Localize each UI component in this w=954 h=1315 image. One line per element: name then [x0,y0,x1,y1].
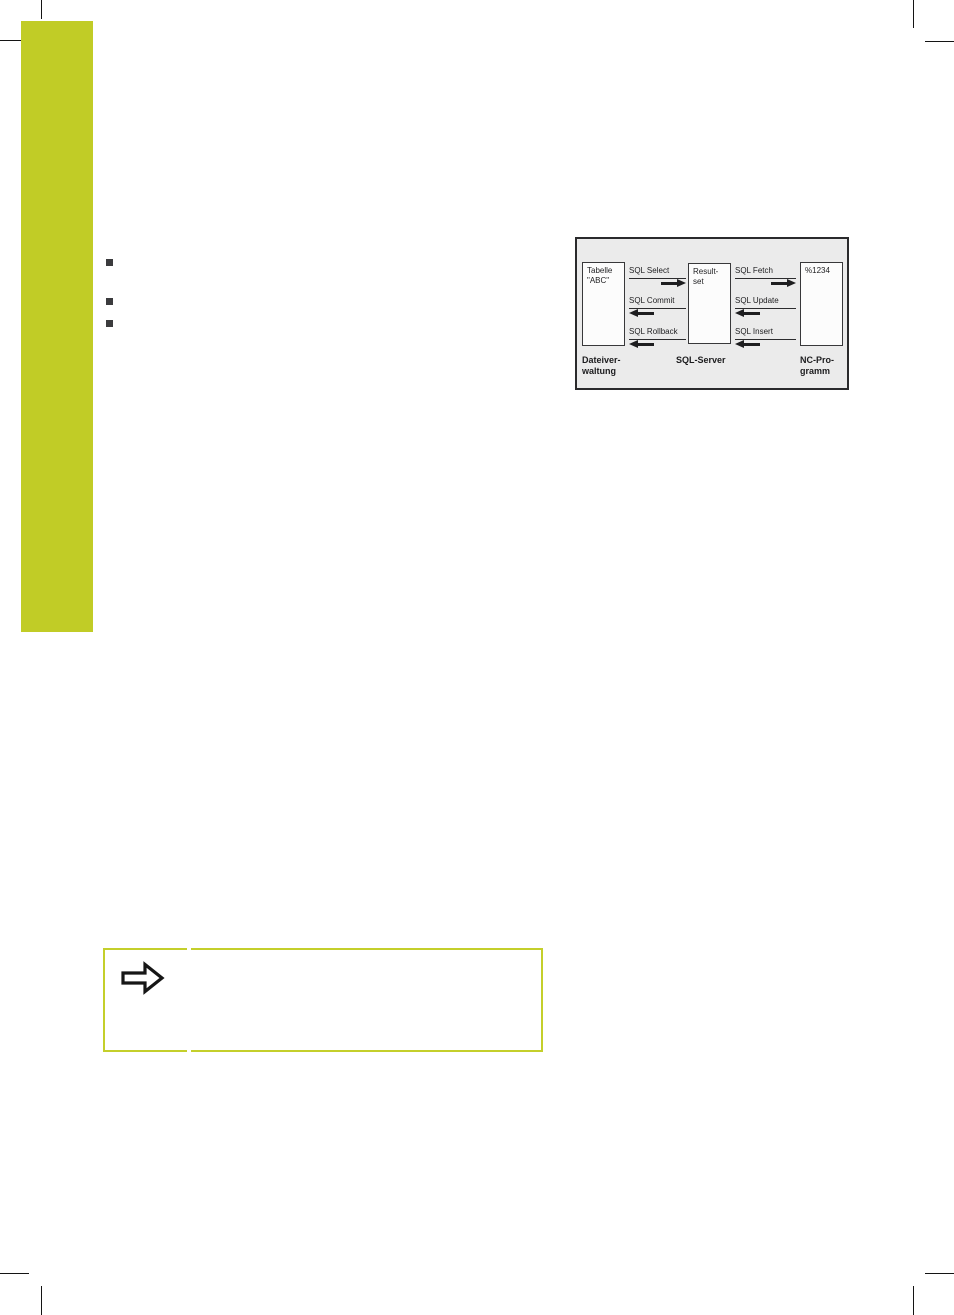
arrow-head-right-icon [771,279,796,287]
note-arrow-icon [120,960,166,996]
arrow-head-left-icon [735,340,760,348]
caption-nc-programm-line1: NC-Pro- [800,355,834,365]
sql-update-arrow: SQL Update [735,296,796,320]
crop-mark-bottom-left-vertical [41,1286,42,1315]
note-icon-cell [103,948,187,1052]
crop-mark-bottom-right-horizontal [925,1273,954,1274]
crop-mark-top-left-horizontal [0,40,21,41]
sql-fetch-label: SQL Fetch [735,266,796,279]
caption-sql-server: SQL-Server [676,355,726,366]
caption-nc-programm: NC-Pro- gramm [800,355,834,377]
sql-fetch-arrow: SQL Fetch [735,266,796,290]
note-text-cell [191,948,543,1052]
result-set-box: Result- set [688,263,731,344]
sql-insert-arrow: SQL Insert [735,327,796,351]
table-abc-label-line2: "ABC" [587,276,609,285]
arrow-head-right-icon [661,279,686,287]
arrow-head-left-icon [629,309,654,317]
table-abc-label-line1: Tabelle [587,266,612,275]
result-set-label-line2: set [693,277,704,286]
crop-mark-top-left-vertical [41,0,42,19]
sql-select-label: SQL Select [629,266,686,279]
caption-sql-server-line1: SQL-Server [676,355,726,365]
nc-program-label: %1234 [805,266,830,275]
sql-rollback-arrow: SQL Rollback [629,327,686,351]
caption-dateiverwaltung-line2: waltung [582,366,616,376]
caption-nc-programm-line2: gramm [800,366,830,376]
bullet-square-icon [106,320,113,327]
arrow-head-left-icon [735,309,760,317]
sql-rollback-label: SQL Rollback [629,327,686,340]
sql-select-arrow: SQL Select [629,266,686,290]
caption-dateiverwaltung: Dateiver- waltung [582,355,621,377]
note-box [103,948,543,1052]
sql-commit-label: SQL Commit [629,296,686,309]
table-abc-box: Tabelle "ABC" [582,262,625,346]
manual-page: { "page": { "background": "#ffffff", "cr… [0,0,954,1315]
bullet-square-icon [106,259,113,266]
crop-mark-top-right-horizontal [925,41,954,42]
caption-dateiverwaltung-line1: Dateiver- [582,355,621,365]
sql-update-label: SQL Update [735,296,796,309]
sql-insert-label: SQL Insert [735,327,796,340]
arrow-head-left-icon [629,340,654,348]
chapter-tab-bar [21,21,93,632]
crop-mark-bottom-left-horizontal [0,1273,29,1274]
crop-mark-top-right-vertical [913,0,914,28]
crop-mark-bottom-right-vertical [913,1286,914,1315]
result-set-label-line1: Result- [693,267,718,276]
nc-program-box: %1234 [800,262,843,346]
sql-diagram: Tabelle "ABC" Result- set %1234 SQL Sele… [575,237,849,390]
bullet-square-icon [106,298,113,305]
sql-commit-arrow: SQL Commit [629,296,686,320]
